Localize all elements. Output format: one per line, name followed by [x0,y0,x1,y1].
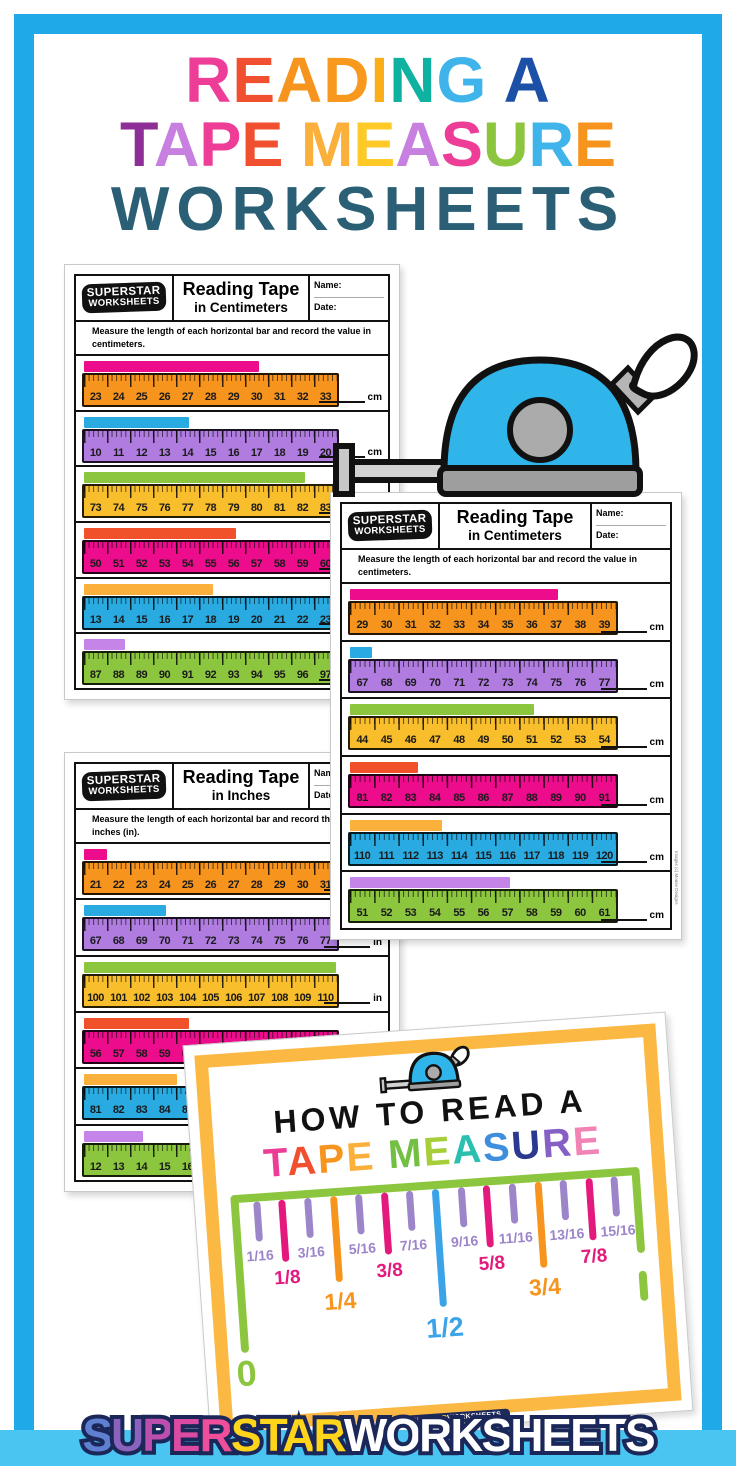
ruler-number: 68 [107,935,130,947]
ruler-number: 51 [520,734,544,746]
letter: R [528,110,574,180]
ruler-number: 107 [245,992,268,1004]
unit-label: cm [650,737,664,748]
ruler-number: 52 [374,907,398,919]
superstar-worksheets-footer-logo: SUPERSTARWORKSHEETS [0,1408,736,1462]
ruler-number: 53 [398,907,422,919]
letter: E [541,1409,570,1461]
measure-bar [350,704,534,715]
ruler-ticks [84,653,337,665]
measure-bar [84,361,259,372]
ruler-number: 77 [176,502,199,514]
ruler-zone: 6768697071727374757677 [82,905,339,951]
ruler: 4445464748495051525354 [348,716,618,750]
measure-bar [84,584,213,595]
ruler-number: 31 [398,619,422,631]
ruler-zone: 5152535455565758596061 [348,877,618,923]
ruler-number: 69 [130,935,153,947]
ruler-number: 85 [447,792,471,804]
ruler-ticks [350,718,616,730]
ruler-number: 81 [268,502,291,514]
ruler-number: 59 [291,558,314,570]
measure-bar [350,589,558,600]
ruler-number: 104 [176,992,199,1004]
ruler: 1314151617181920212223 [82,596,339,630]
ruler: 5152535455565758596061 [348,889,618,923]
fraction-tick [585,1178,596,1240]
ruler-number: 26 [153,391,176,403]
fraction-tick [534,1182,547,1268]
letter: T [120,110,154,180]
answer-line [601,854,647,863]
ruler-number: 29 [268,879,291,891]
ruler-number: 109 [291,992,314,1004]
ruler-number: 56 [222,558,245,570]
ruler-number: 60 [568,907,592,919]
ruler-number: 52 [544,734,568,746]
worksheet-title: Reading Tape in Centimeters [440,504,590,548]
unit-label: cm [650,910,664,921]
ruler-ticks [350,891,616,903]
ruler-ticks [84,431,337,443]
ruler-number: 72 [199,935,222,947]
letter: E [353,110,395,180]
answer-blank: cm [601,679,664,690]
ruler-number: 108 [268,992,291,1004]
ruler-number: 100 [84,992,107,1004]
ruler-row: 5152535455565758596061cm [342,870,670,928]
letter: S [231,1409,260,1461]
superstar-worksheets-logo: SUPERSTAR WORKSHEETS [82,282,167,314]
worksheet-title: Reading Tape in Centimeters [174,276,308,320]
ruler-number: 76 [291,935,314,947]
ruler-numbers: 8788899091929394959697 [84,669,337,681]
ruler-numbers: 2324252627282930313233 [84,391,337,403]
ruler-number: 14 [130,1161,153,1173]
ruler-numbers: 1314151617181920212223 [84,614,337,626]
ruler-number: 115 [471,850,495,862]
ruler-number: 19 [291,447,314,459]
ruler-row: 100101102103104105106107108109110in [76,955,388,1011]
ruler-ticks [84,375,337,387]
ruler-number: 49 [471,734,495,746]
ruler-number: 34 [471,619,495,631]
answer-line [601,797,647,806]
ruler-zone: 5051525354555657585960 [82,528,339,574]
ruler-number: 75 [130,502,153,514]
fraction-tick [432,1189,447,1307]
ruler-zone: 1011121314151617181920 [82,417,339,463]
fraction-label: 5/16 [348,1239,376,1257]
ruler-number: 30 [245,391,268,403]
letter: E [232,44,276,116]
ruler-number: 15 [199,447,222,459]
letter: P [142,1409,171,1461]
ruler: 7374757677787980818283 [82,484,339,518]
fraction-tick [483,1185,494,1247]
ruler-number: 82 [107,1104,130,1116]
ruler-number: 75 [268,935,291,947]
ruler-number: 70 [423,677,447,689]
ruler-number: 17 [176,614,199,626]
logo-cell: SUPERSTAR WORKSHEETS [76,276,174,320]
logo-cell: SUPERSTAR WORKSHEETS [76,764,174,808]
ruler-number: 71 [447,677,471,689]
letter [487,44,503,116]
answer-blank: cm [601,795,664,806]
ruler-number: 94 [245,669,268,681]
answer-line [324,995,370,1004]
ruler-number: 57 [495,907,519,919]
fraction-label: 1/4 [323,1287,357,1316]
ruler-number: 29 [222,391,245,403]
ruler-number: 90 [568,792,592,804]
ruler-number: 73 [222,935,245,947]
ruler-number: 105 [199,992,222,1004]
ruler-number: 22 [291,614,314,626]
fraction-label: 7/16 [399,1236,427,1254]
superstar-worksheets-logo: SUPERSTAR WORKSHEETS [348,510,433,542]
ruler-zone: 2930313233343536373839 [348,589,618,635]
fraction-label: 1/2 [425,1311,465,1345]
ruler-number: 54 [176,558,199,570]
ruler-number: 90 [153,669,176,681]
answer-line [601,912,647,921]
fraction-tick [611,1176,621,1216]
fraction-tick [381,1192,392,1254]
letter: S [481,1125,513,1171]
ruler-zone: 110111112113114115116117118119120 [348,820,618,866]
letter: T [260,1409,283,1461]
letter: A [276,44,323,116]
date-label: Date: [314,300,384,312]
measure-bar [350,820,442,831]
tape-measure-icon [377,1038,476,1097]
ruler-number: 84 [423,792,447,804]
how-to-card: HOW TO READ A TAPE MEASURE 0 1/161/83/16… [183,1012,694,1445]
ruler-number: 18 [199,614,222,626]
fraction-label: 3/4 [528,1273,562,1302]
letter: U [510,1123,544,1169]
ruler-ticks [84,863,337,875]
ruler-number: 95 [268,669,291,681]
ruler-number: 29 [350,619,374,631]
worksheet-centimeters-2: SUPERSTAR WORKSHEETS Reading Tape in Cen… [330,492,682,940]
ruler-number: 96 [291,669,314,681]
letter: S [625,1409,654,1461]
ruler: 6768697071727374757677 [82,917,339,951]
ruler-number: 12 [84,1161,107,1173]
ruler-numbers: 2930313233343536373839 [350,619,616,631]
letter: G [436,44,487,116]
worksheet-table: SUPERSTAR WORKSHEETS Reading Tape in Cen… [340,502,672,930]
measure-bar [350,762,418,773]
ruler-number: 32 [423,619,447,631]
letter: E [422,1129,454,1175]
ruler-number: 25 [176,879,199,891]
instructions: Measure the length of each horizontal ba… [342,550,670,584]
fraction-ruler-diagram: 0 1/161/83/161/45/163/87/161/29/165/811/… [230,1167,654,1413]
fraction-label: 1/8 [273,1267,301,1291]
ruler-number: 47 [423,734,447,746]
ruler-number: 82 [374,792,398,804]
measure-bar [84,962,336,973]
ruler-number: 76 [568,677,592,689]
fraction-label: 3/8 [376,1260,404,1284]
ruler: 2324252627282930313233 [82,373,339,407]
ruler-number: 50 [84,558,107,570]
ruler-number: 50 [495,734,519,746]
title-line-1: READING A [34,48,702,113]
ruler-number: 22 [107,879,130,891]
letter: E [572,1118,604,1164]
unit-label: in [373,993,382,1004]
worksheet-title: Reading Tape in Inches [174,764,308,808]
letter: A [451,1127,485,1173]
ruler-number: 71 [176,935,199,947]
ruler-numbers: 110111112113114115116117118119120 [350,850,616,862]
ruler-number: 91 [176,669,199,681]
ruler-number: 76 [153,502,176,514]
fraction-label: 9/16 [450,1232,478,1250]
ruler-number: 45 [374,734,398,746]
measure-bar [84,905,166,916]
ruler-number: 92 [199,669,222,681]
ruler-number: 51 [107,558,130,570]
ruler-number: 16 [153,614,176,626]
ruler-number: 88 [520,792,544,804]
title-line-2: TAPE MEASURE [34,113,702,177]
measure-bar [84,639,125,650]
ruler-number: 69 [398,677,422,689]
ruler-number: 14 [176,447,199,459]
ruler-number: 73 [495,677,519,689]
ruler-number: 23 [84,391,107,403]
ruler-number: 55 [199,558,222,570]
letter: R [185,44,232,116]
ruler-number: 58 [520,907,544,919]
ruler-number: 18 [268,447,291,459]
letter: D [323,44,370,116]
fraction-label: 15/16 [600,1221,636,1239]
date-label: Date: [596,528,666,540]
ruler-number: 117 [520,850,544,862]
ruler-numbers: 4445464748495051525354 [350,734,616,746]
ruler-number: 38 [568,619,592,631]
name-date-cell: Name: Date: [590,504,670,548]
letter: S [82,1409,111,1461]
ruler-numbers: 7374757677787980818283 [84,502,337,514]
answer-line [601,624,647,633]
ruler-number: 17 [245,447,268,459]
ruler-number: 67 [84,935,107,947]
letter [283,110,301,180]
letter: A [504,44,551,116]
answer-line [324,939,370,948]
ruler-number: 44 [350,734,374,746]
ruler-numbers: 1011121314151617181920 [84,447,337,459]
fraction-label: 5/8 [478,1252,506,1276]
ruler-ticks [84,919,337,931]
ruler-number: 51 [350,907,374,919]
ruler-number: 13 [153,447,176,459]
ruler-number: 13 [107,1161,130,1173]
answer-blank: in [324,993,382,1004]
answer-line [601,739,647,748]
ruler-zone: 1314151617181920212223 [82,584,339,630]
ruler-number: 74 [245,935,268,947]
letter: S [482,1409,511,1461]
ruler: 8182838485868788899091 [348,774,618,808]
ruler-number: 70 [153,935,176,947]
ruler-number: 89 [544,792,568,804]
letter: N [389,44,436,116]
fraction-label: 3/16 [297,1243,325,1261]
ruler-number: 84 [153,1104,176,1116]
unit-label: cm [650,795,664,806]
ruler-number: 53 [568,734,592,746]
letter: P [199,110,241,180]
ruler-number: 36 [520,619,544,631]
ruler-number: 67 [350,677,374,689]
name-label: Name: [314,280,384,298]
letter: H [510,1409,541,1461]
ruler-number: 27 [222,879,245,891]
ruler-rows: 2930313233343536373839cm6768697071727374… [342,584,670,928]
letter: I [370,44,389,116]
ruler-number: 81 [84,1104,107,1116]
answer-line [601,681,647,690]
ruler-number: 54 [423,907,447,919]
measure-bar [84,528,236,539]
ruler-number: 30 [291,879,314,891]
ruler-numbers: 6768697071727374757677 [350,677,616,689]
letter: T [599,1409,625,1461]
ruler-ticks [84,598,337,610]
letter: K [450,1409,481,1461]
fraction-tick [355,1194,365,1234]
letter: U [111,1409,142,1461]
ruler-numbers: 6768697071727374757677 [84,935,337,947]
letter: M [301,110,353,180]
name-label: Name: [596,508,666,526]
pin-graphic: READING A TAPE MEASURE WORKSHEETS SUPERS… [0,0,736,1472]
ruler-zone: 2324252627282930313233 [82,361,339,407]
ruler-number: 118 [544,850,568,862]
ruler-number: 21 [268,614,291,626]
ruler-number: 31 [268,391,291,403]
letter: A [286,1138,320,1184]
fraction-tick [560,1180,570,1220]
ruler-row: 8182838485868788899091cm [342,755,670,813]
ruler-number: 114 [447,850,471,862]
name-date-cell: Name: Date: [308,276,388,320]
ruler-number: 23 [130,879,153,891]
ruler-number: 20 [245,614,268,626]
ruler-number: 116 [495,850,519,862]
ruler-number: 48 [447,734,471,746]
letter: A [154,110,200,180]
ruler-row: 4445464748495051525354cm [342,697,670,755]
fraction-tick [457,1187,467,1227]
letter: R [419,1409,450,1461]
image-credit: Images (c) Mouse Designs [674,851,679,905]
ruler-number: 30 [374,619,398,631]
answer-blank: cm [601,622,664,633]
ruler-number: 88 [107,669,130,681]
ruler-number: 57 [245,558,268,570]
ruler-number: 13 [84,614,107,626]
ruler-number: 57 [107,1048,130,1060]
ruler-numbers: 5051525354555657585960 [84,558,337,570]
letter: A [282,1409,313,1461]
ruler-number: 15 [130,614,153,626]
ruler-number: 87 [495,792,519,804]
superstar-worksheets-logo: SUPERSTAR WORKSHEETS [82,770,167,802]
fraction-tick [253,1201,263,1241]
letter: S [441,110,483,180]
ruler-numbers: 5152535455565758596061 [350,907,616,919]
measure-bar [350,877,510,888]
unit-label: cm [650,679,664,690]
ruler-number: 68 [374,677,398,689]
ruler-number: 86 [471,792,495,804]
ruler-number: 58 [268,558,291,570]
measure-bar [84,1131,143,1142]
measure-bar [84,849,107,860]
ruler-ticks [350,603,616,615]
fraction-tick [508,1183,518,1223]
ruler-number: 56 [471,907,495,919]
fraction-label: 1/16 [246,1247,274,1265]
ruler-number: 112 [398,850,422,862]
ruler-zone: 8788899091929394959697 [82,639,339,685]
ruler-number: 25 [130,391,153,403]
ruler-number: 106 [222,992,245,1004]
letter: E [574,110,616,180]
answer-blank: cm [601,852,664,863]
letter: P [316,1136,348,1182]
letter: R [200,1409,231,1461]
ruler-number: 83 [398,792,422,804]
ruler-number: 93 [222,669,245,681]
letter: M [387,1131,425,1177]
measure-bar [84,1074,177,1085]
letter: R [313,1409,343,1461]
ruler-row: 110111112113114115116117118119120cm [342,813,670,871]
ruler-number: 78 [199,502,222,514]
page-title: READING A TAPE MEASURE WORKSHEETS [34,48,702,241]
ruler-number: 28 [245,879,268,891]
ruler-number: 28 [199,391,222,403]
measure-bar [84,1018,189,1029]
fraction-label: 11/16 [498,1228,533,1246]
fraction-tick [304,1198,314,1238]
ruler-numbers: 8182838485868788899091 [350,792,616,804]
ruler-number: 21 [84,879,107,891]
ruler-number: 80 [245,502,268,514]
ruler: 8788899091929394959697 [82,651,339,685]
ruler-number: 19 [222,614,245,626]
ruler-numbers: 100101102103104105106107108109110 [84,992,337,1004]
ruler-number: 102 [130,992,153,1004]
letter: E [171,1409,200,1461]
logo-cell: SUPERSTAR WORKSHEETS [342,504,440,548]
measure-bar [84,472,305,483]
ruler-number: 81 [350,792,374,804]
measure-bar [84,417,189,428]
fraction-label: 13/16 [549,1225,585,1243]
